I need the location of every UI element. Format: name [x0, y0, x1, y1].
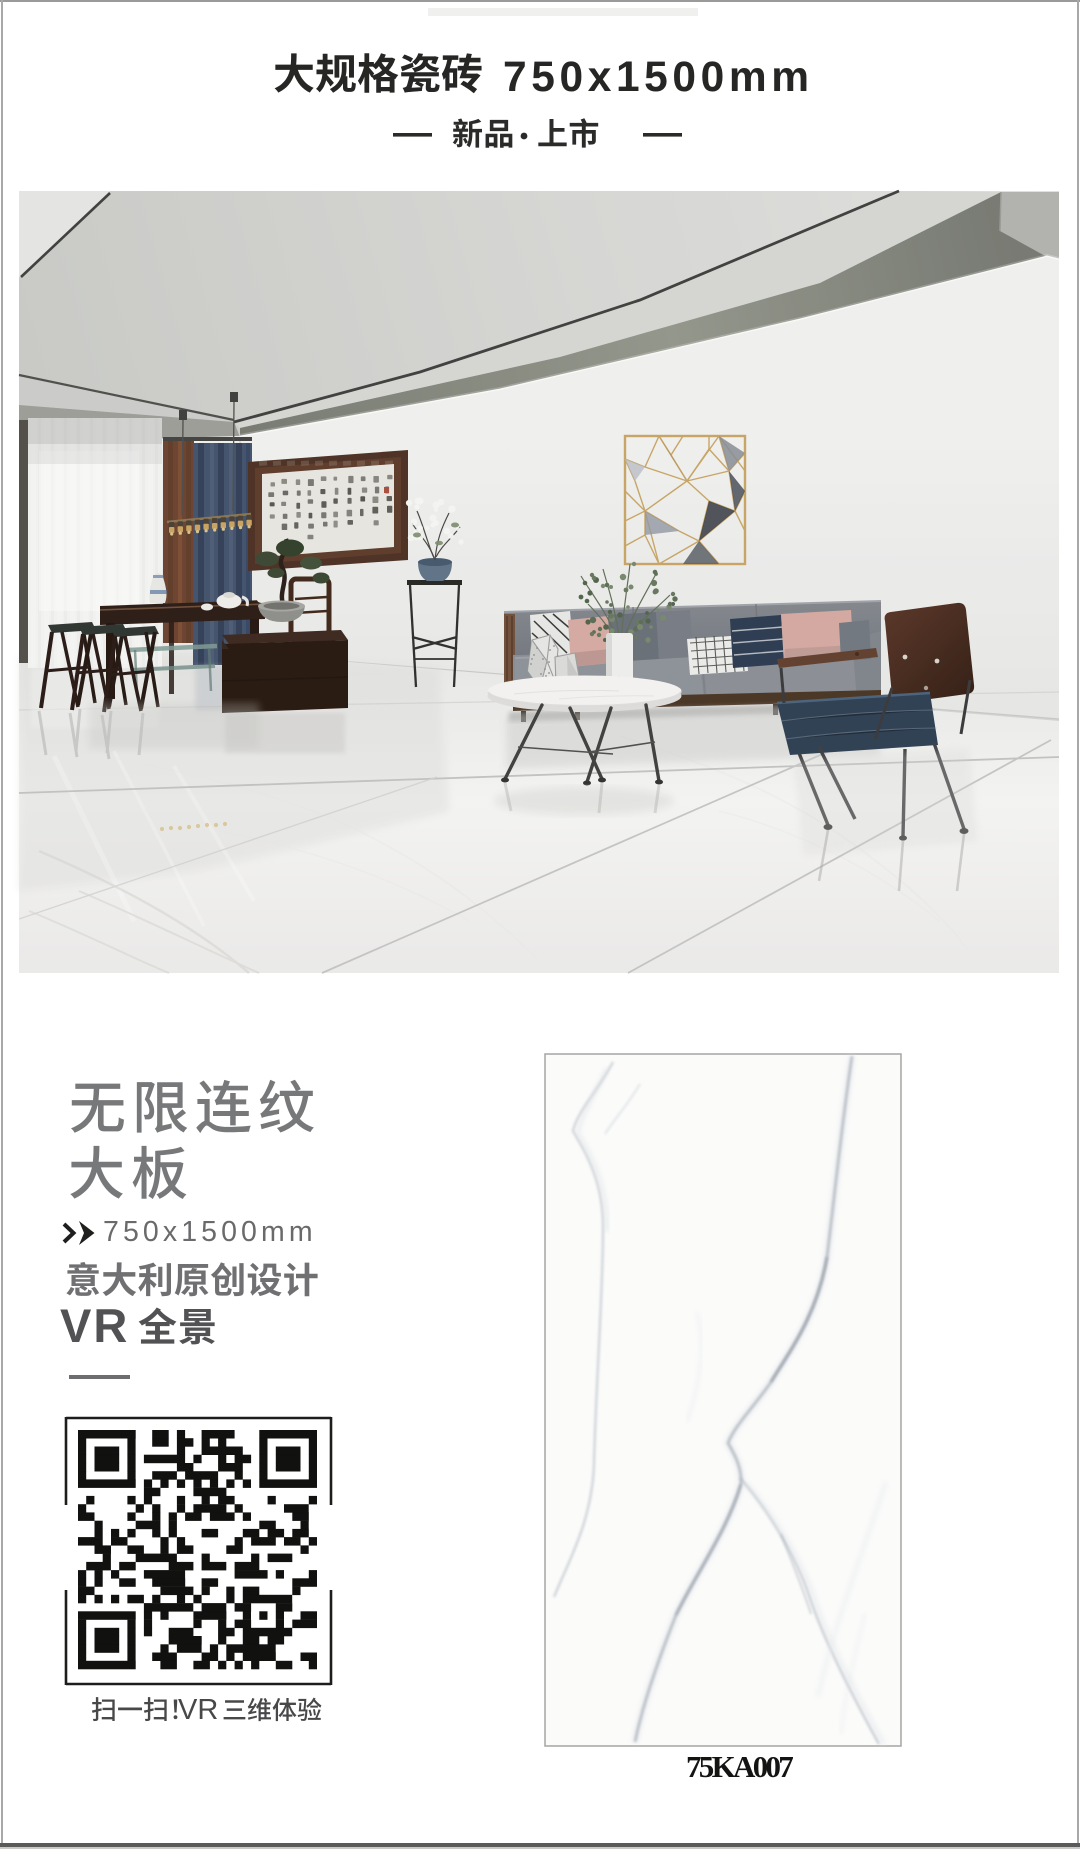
svg-text:750x1500mm: 750x1500mm [503, 54, 814, 101]
svg-text:750x1500mm: 750x1500mm [103, 1216, 317, 1248]
svg-text:VR: VR [60, 1299, 129, 1352]
svg-text:75KA007: 75KA007 [686, 1749, 793, 1784]
svg-text:VR: VR [178, 1694, 218, 1726]
